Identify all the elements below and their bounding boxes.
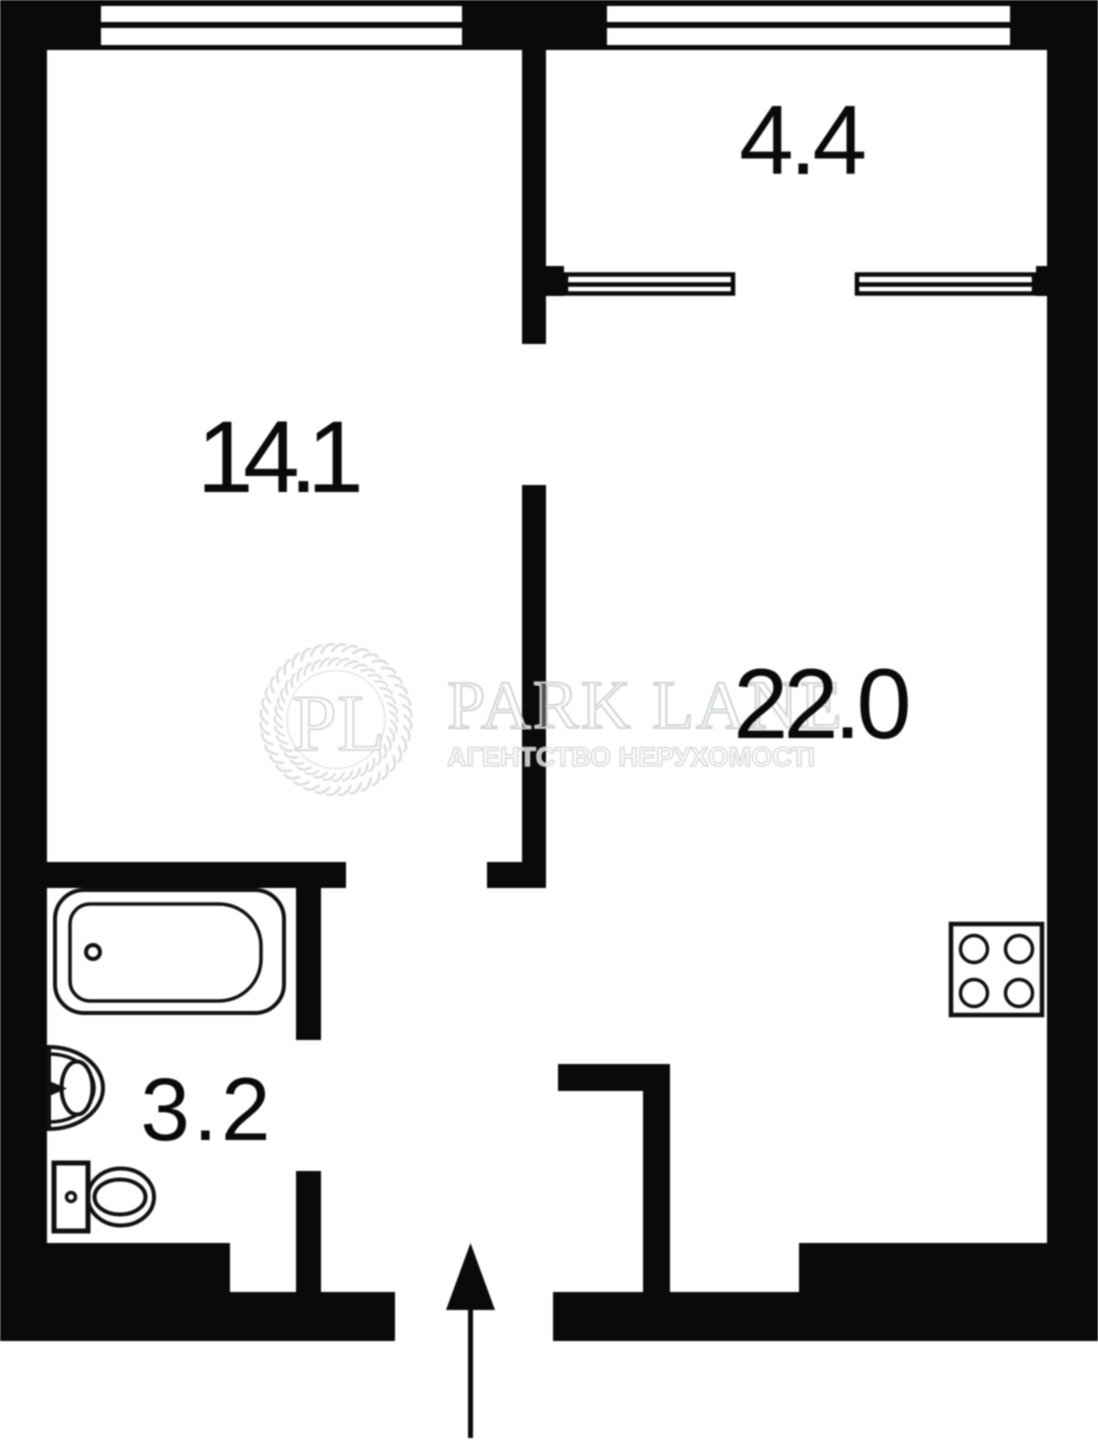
svg-text:22.0: 22.0 bbox=[733, 648, 908, 759]
svg-text:3.2: 3.2 bbox=[140, 1059, 273, 1159]
svg-text:14.1: 14.1 bbox=[197, 400, 359, 514]
svg-text:4.4: 4.4 bbox=[739, 85, 864, 195]
svg-text:PL: PL bbox=[292, 680, 385, 768]
